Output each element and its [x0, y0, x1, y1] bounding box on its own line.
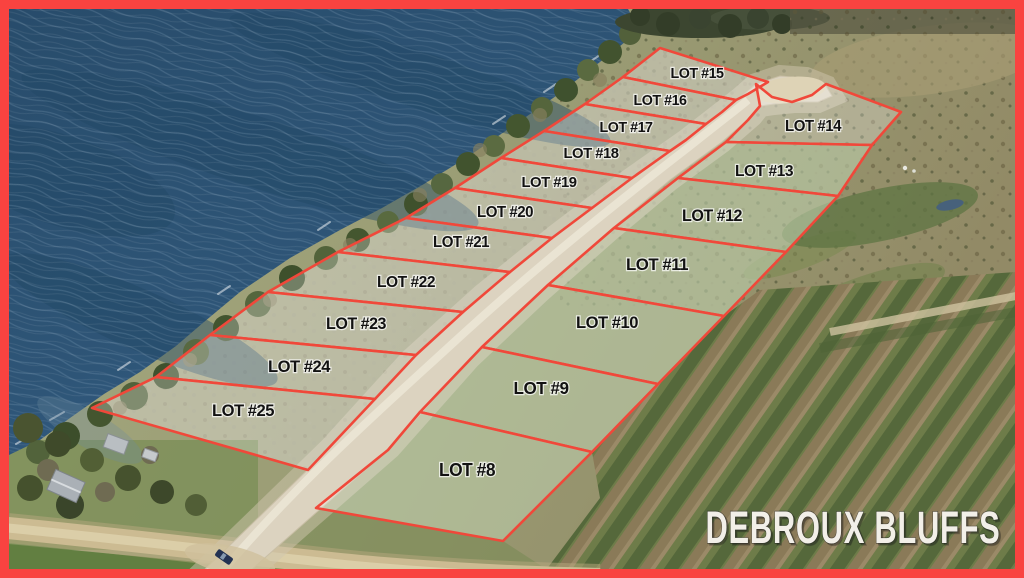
top-tree-band [615, 6, 1016, 38]
lot-label-11: LOT #11 [626, 255, 688, 274]
lot-label-23: LOT #23 [326, 315, 386, 333]
lot-label-18: LOT #18 [564, 145, 619, 162]
lot-label-13: LOT #13 [735, 163, 794, 180]
lot-label-21: LOT #21 [433, 234, 490, 251]
equipment-dot [912, 169, 916, 173]
equipment-dot [903, 166, 907, 170]
lot-label-22: LOT #22 [377, 274, 436, 291]
lot-label-15: LOT #15 [671, 66, 724, 82]
lot-label-8: LOT #8 [439, 460, 495, 480]
lot-label-20: LOT #20 [477, 204, 533, 221]
lot-label-19: LOT #19 [522, 174, 577, 191]
aerial-photo: LOT #15LOT #16LOT #17LOT #18LOT #19LOT #… [0, 0, 1024, 578]
lot-label-17: LOT #17 [600, 120, 653, 136]
lot-label-9: LOT #9 [514, 378, 570, 398]
lot-label-14: LOT #14 [785, 118, 842, 135]
lot-label-12: LOT #12 [682, 207, 742, 225]
lot-label-16: LOT #16 [634, 93, 687, 109]
scene-svg: LOT #15LOT #16LOT #17LOT #18LOT #19LOT #… [0, 0, 1024, 578]
lot-label-10: LOT #10 [576, 313, 638, 332]
lot-label-25: LOT #25 [212, 401, 274, 420]
watermark: DEBROUX BLUFFS [706, 502, 1001, 553]
lot-label-24: LOT #24 [268, 357, 331, 376]
